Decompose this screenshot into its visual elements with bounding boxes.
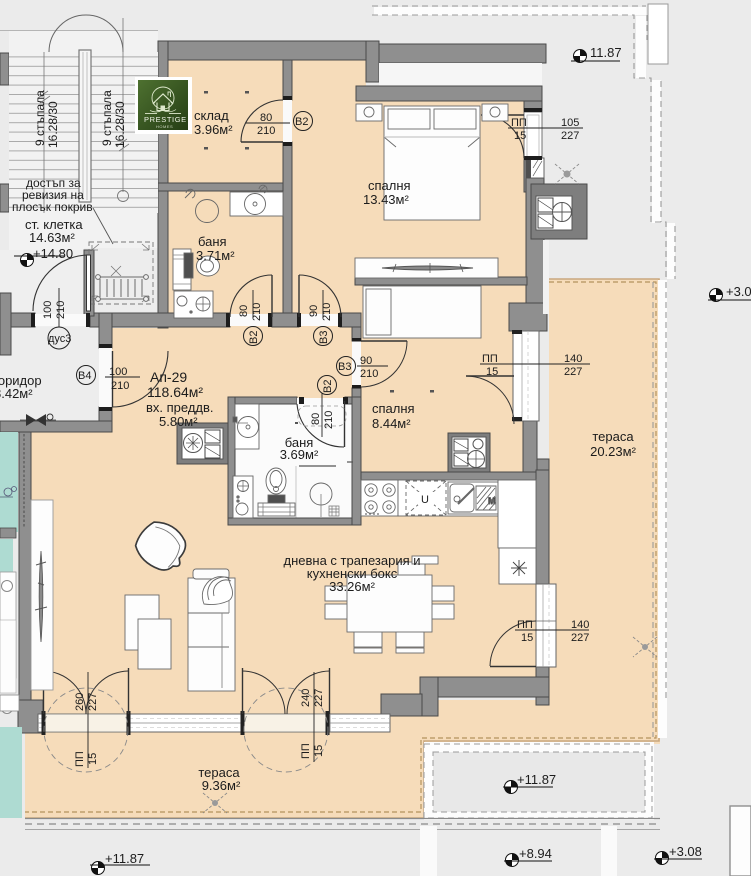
- svg-text:227: 227: [561, 130, 579, 142]
- svg-text:спалня: спалня: [372, 401, 415, 416]
- svg-text:240: 240: [300, 689, 312, 707]
- svg-text:ПП: ПП: [482, 353, 498, 365]
- svg-text:В3: В3: [318, 331, 330, 344]
- svg-text:210: 210: [321, 303, 333, 321]
- svg-text:+11.87: +11.87: [517, 772, 556, 787]
- svg-text:11.87: 11.87: [590, 45, 622, 60]
- svg-text:227: 227: [571, 632, 589, 644]
- svg-text:105: 105: [561, 117, 579, 129]
- svg-text:15: 15: [313, 745, 325, 757]
- svg-text:тераса: тераса: [592, 429, 634, 444]
- svg-text:В2: В2: [248, 331, 260, 344]
- svg-text:8.42м²: 8.42м²: [0, 386, 33, 401]
- svg-text:210: 210: [251, 303, 263, 321]
- svg-text:PRESTIGE: PRESTIGE: [144, 115, 187, 124]
- svg-text:В4: В4: [78, 370, 91, 382]
- svg-text:100: 100: [109, 366, 127, 378]
- svg-text:8.44м²: 8.44м²: [372, 416, 411, 431]
- svg-text:вх. преддв.: вх. преддв.: [146, 400, 214, 415]
- svg-text:140: 140: [564, 353, 582, 365]
- svg-text:16.28/30: 16.28/30: [46, 101, 60, 148]
- svg-text:9 стъпала: 9 стъпала: [100, 90, 114, 146]
- svg-text:33.26м²: 33.26м²: [329, 579, 375, 594]
- svg-text:ПП: ПП: [511, 117, 527, 129]
- svg-text:15: 15: [486, 366, 498, 378]
- svg-text:14.63м²: 14.63м²: [29, 230, 75, 245]
- svg-text:плосък покрив: плосък покрив: [12, 200, 93, 214]
- svg-text:210: 210: [257, 125, 275, 137]
- svg-text:227: 227: [313, 689, 325, 707]
- svg-text:140: 140: [571, 619, 589, 631]
- svg-text:5.80м²: 5.80м²: [159, 414, 198, 429]
- svg-text:80: 80: [238, 305, 250, 317]
- svg-text:210: 210: [323, 411, 335, 429]
- svg-text:+14.80: +14.80: [33, 246, 73, 261]
- svg-text:15: 15: [87, 753, 99, 765]
- svg-text:ПП: ПП: [517, 619, 533, 631]
- svg-text:3.71м²: 3.71м²: [196, 248, 235, 263]
- svg-text:15: 15: [514, 130, 526, 142]
- svg-text:спалня: спалня: [368, 178, 411, 193]
- svg-text:Ап-29: Ап-29: [150, 369, 187, 385]
- svg-text:227: 227: [87, 693, 99, 711]
- svg-text:HOMES: HOMES: [156, 124, 173, 129]
- svg-text:дус3: дус3: [48, 333, 71, 345]
- svg-text:210: 210: [111, 380, 129, 392]
- svg-text:90: 90: [308, 305, 320, 317]
- svg-text:16.28/30: 16.28/30: [113, 101, 127, 148]
- svg-text:80: 80: [260, 112, 272, 124]
- svg-text:227: 227: [564, 366, 582, 378]
- svg-text:ПП: ПП: [300, 743, 312, 759]
- svg-text:В3: В3: [338, 361, 351, 373]
- svg-text:ПП: ПП: [74, 751, 86, 767]
- svg-text:M: M: [488, 496, 496, 506]
- svg-text:В2: В2: [295, 116, 308, 128]
- svg-text:9.36м²: 9.36м²: [202, 778, 241, 793]
- svg-text:13.43м²: 13.43м²: [363, 192, 409, 207]
- svg-text:баня: баня: [198, 234, 227, 249]
- svg-text:U: U: [421, 494, 429, 506]
- svg-text:3.96м²: 3.96м²: [194, 122, 233, 137]
- svg-text:118.64м²: 118.64м²: [147, 384, 203, 400]
- svg-text:+3.08: +3.08: [726, 284, 751, 299]
- svg-text:210: 210: [360, 368, 378, 380]
- svg-text:100: 100: [42, 301, 54, 319]
- svg-text:80: 80: [310, 413, 322, 425]
- svg-text:+8.94: +8.94: [519, 846, 552, 861]
- svg-text:15: 15: [521, 632, 533, 644]
- svg-text:20.23м²: 20.23м²: [590, 444, 636, 459]
- svg-text:260: 260: [74, 693, 86, 711]
- svg-text:210: 210: [55, 301, 67, 319]
- svg-text:склад: склад: [194, 108, 229, 123]
- svg-text:+11.87: +11.87: [105, 851, 144, 866]
- svg-text:90: 90: [360, 355, 372, 367]
- svg-text:В2: В2: [322, 380, 334, 393]
- svg-text:9 стъпала: 9 стъпала: [33, 90, 47, 146]
- svg-text:3.69м²: 3.69м²: [280, 447, 319, 462]
- svg-text:+3.08: +3.08: [669, 844, 702, 859]
